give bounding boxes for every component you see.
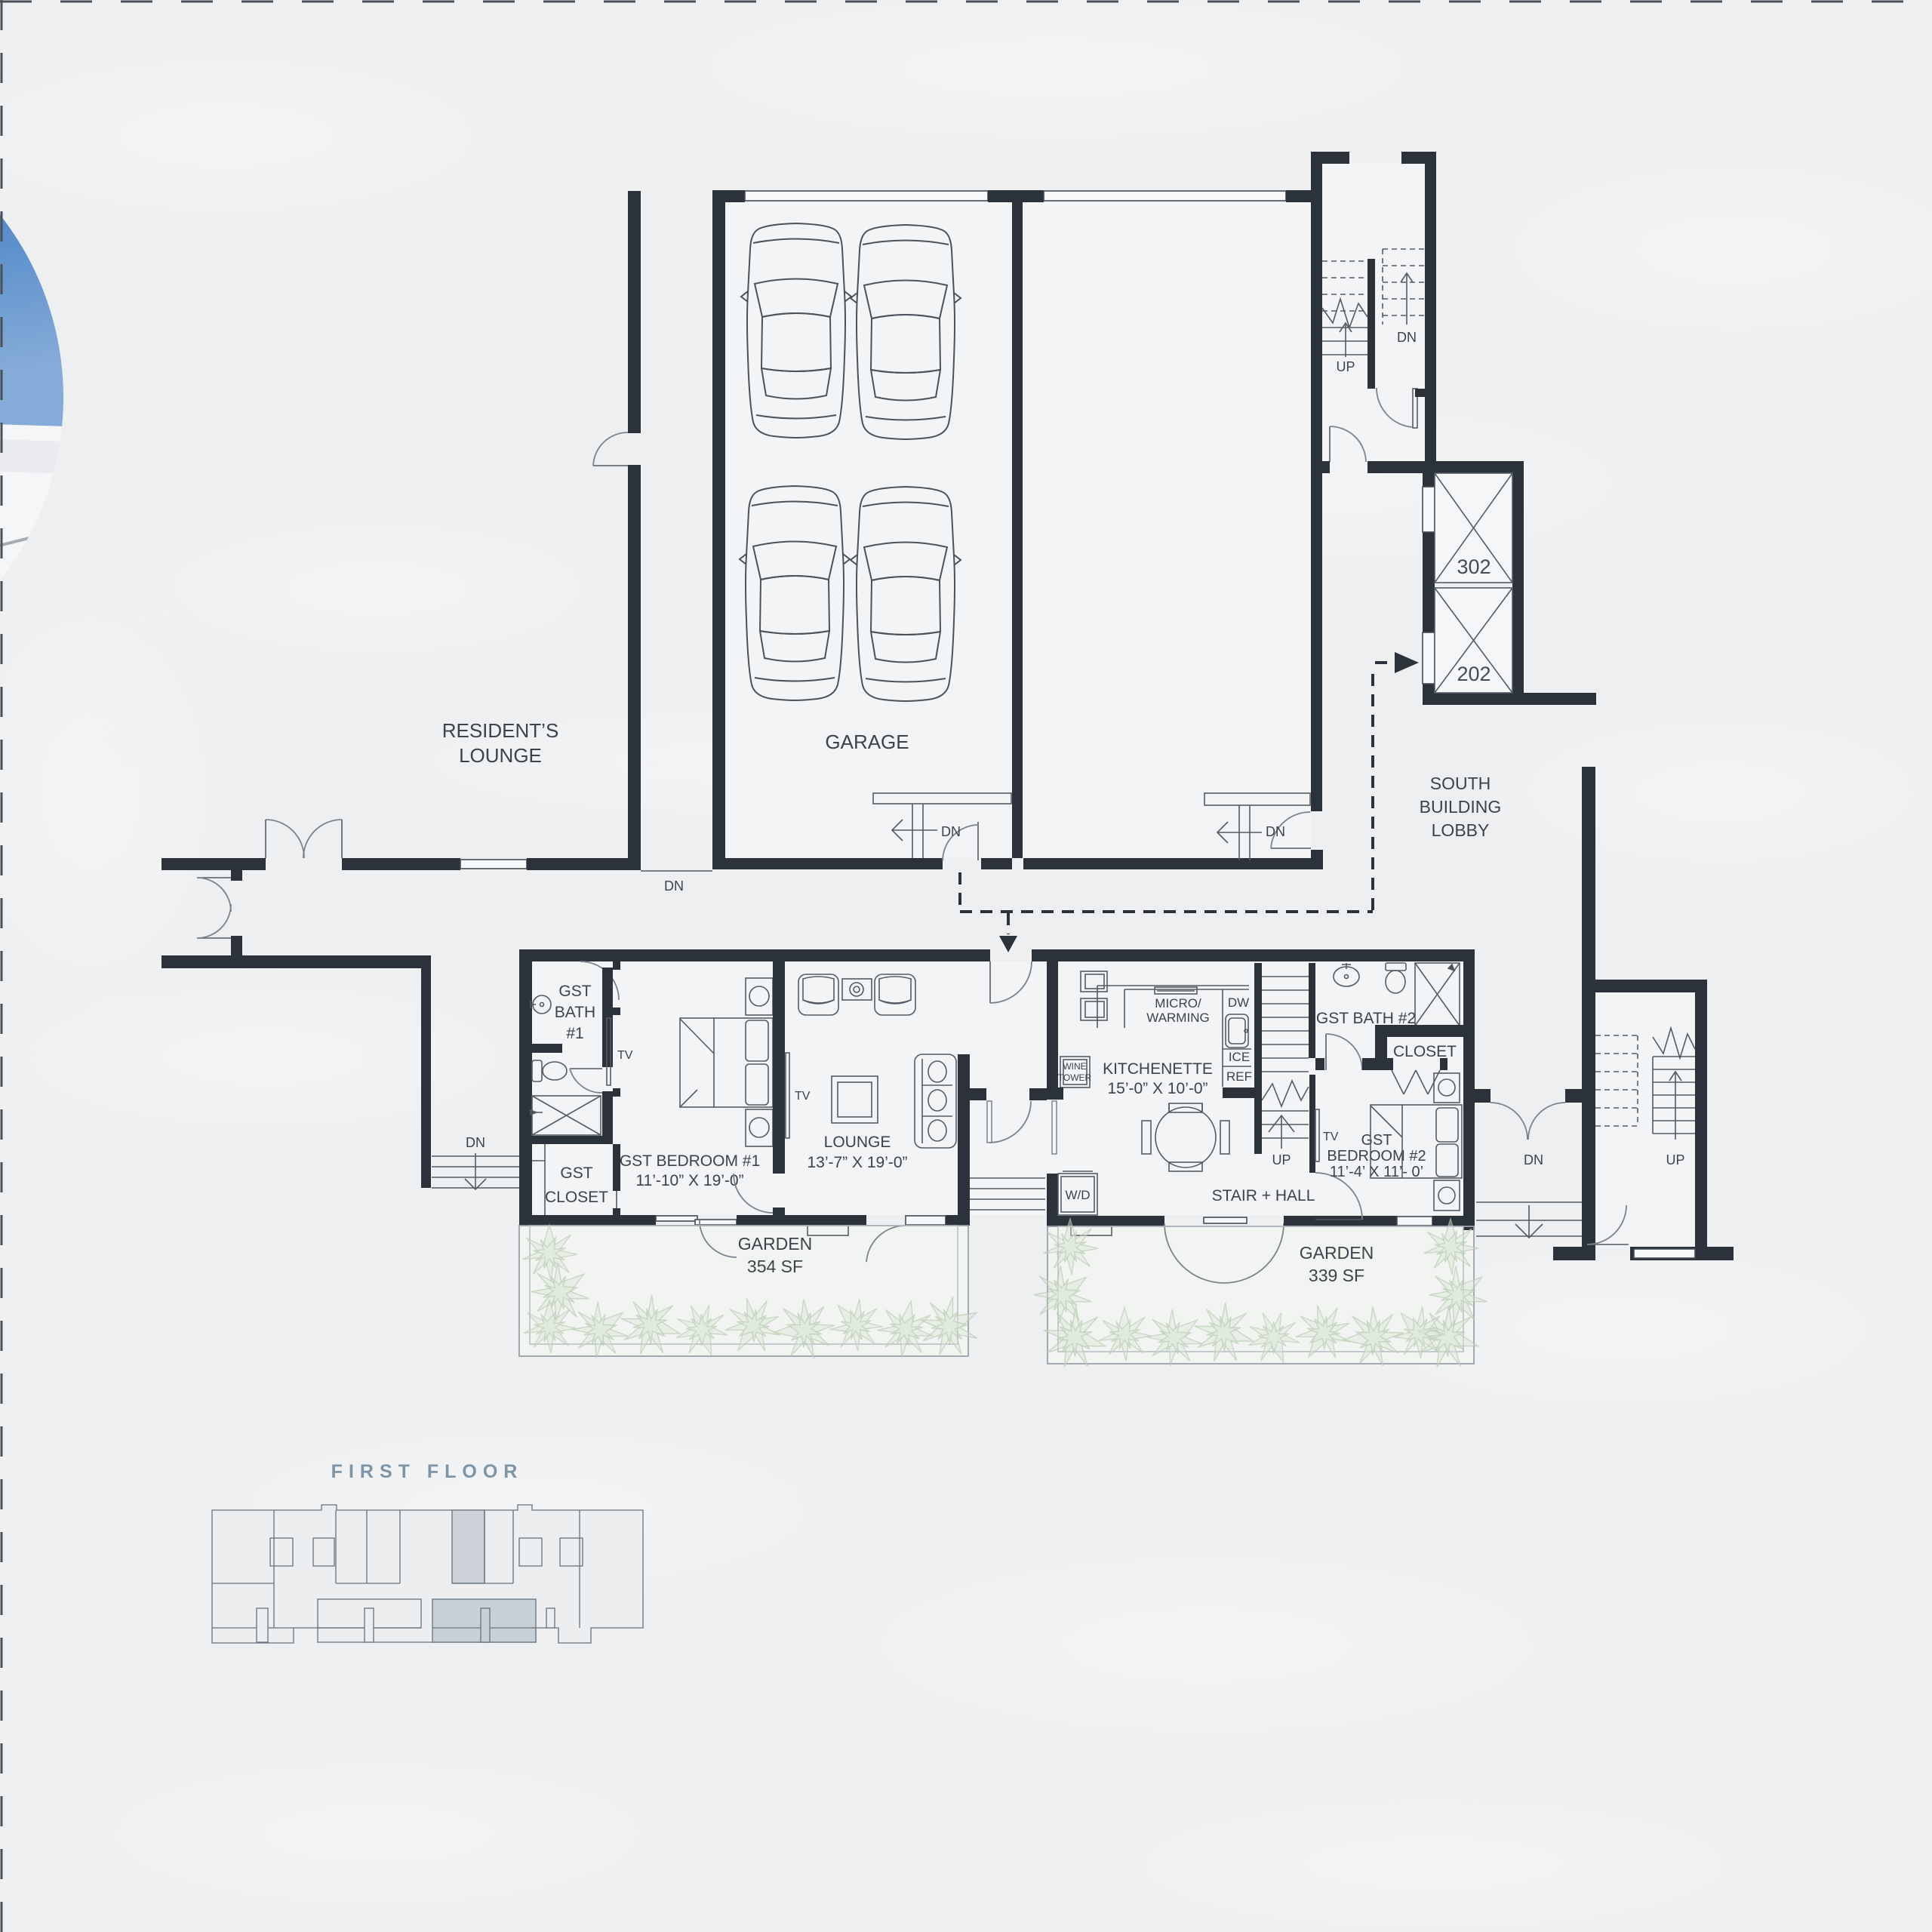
svg-text:GST: GST [1361,1132,1392,1149]
svg-text:354 SF: 354 SF [747,1257,803,1276]
svg-text:LOUNGE: LOUNGE [824,1134,891,1151]
svg-text:REF: REF [1226,1069,1252,1084]
svg-text:DN: DN [664,878,684,894]
svg-text:SOUTH: SOUTH [1430,774,1491,793]
svg-text:DN: DN [1266,824,1285,839]
svg-text:MICRO/: MICRO/ [1155,996,1201,1011]
svg-text:UP: UP [1666,1152,1684,1168]
svg-text:DN: DN [466,1135,485,1150]
svg-text:GST BEDROOM #1: GST BEDROOM #1 [620,1152,760,1170]
svg-text:15’-0” X 10’-0”: 15’-0” X 10’-0” [1107,1080,1207,1097]
svg-text:LOUNGE: LOUNGE [459,744,542,767]
svg-text:DW: DW [1228,995,1249,1010]
svg-text:W/D: W/D [1065,1188,1090,1202]
svg-text:DN: DN [1524,1152,1543,1168]
svg-text:UP: UP [1336,359,1355,374]
svg-text:STAIR + HALL: STAIR + HALL [1212,1187,1315,1204]
svg-text:DN: DN [1397,330,1417,345]
svg-text:GARDEN: GARDEN [738,1234,812,1254]
svg-text:302: 302 [1457,555,1491,578]
svg-text:339 SF: 339 SF [1309,1266,1364,1285]
svg-text:TV: TV [795,1090,811,1103]
svg-text:GARAGE: GARAGE [825,731,909,753]
svg-text:TOWER: TOWER [1058,1072,1092,1083]
svg-text:RESIDENT’S: RESIDENT’S [442,719,559,742]
svg-text:13’-7” X 19’-0”: 13’-7” X 19’-0” [807,1154,907,1171]
svg-text:WARMING: WARMING [1146,1011,1209,1025]
svg-text:202: 202 [1457,663,1491,685]
svg-text:BEDROOM #2: BEDROOM #2 [1327,1148,1426,1164]
svg-text:GST: GST [558,983,591,1000]
svg-text:FIRST FLOOR: FIRST FLOOR [331,1461,524,1482]
svg-text:TV: TV [1323,1131,1339,1143]
svg-text:WINE: WINE [1063,1061,1086,1072]
svg-text:GST: GST [560,1164,592,1182]
svg-text:GST BATH #2: GST BATH #2 [1316,1010,1416,1027]
svg-text:CLOSET: CLOSET [545,1189,608,1206]
svg-text:#1: #1 [566,1025,583,1042]
svg-text:TV: TV [617,1049,633,1062]
svg-text:GARDEN: GARDEN [1300,1243,1374,1263]
svg-text:KITCHENETTE: KITCHENETTE [1103,1060,1213,1078]
svg-text:11’-10” X 19’-0”: 11’-10” X 19’-0” [635,1172,743,1189]
svg-text:BUILDING: BUILDING [1420,797,1502,817]
svg-text:UP: UP [1272,1152,1291,1168]
svg-text:CLOSET: CLOSET [1393,1043,1457,1060]
svg-text:BATH: BATH [555,1004,595,1021]
svg-text:LOBBY: LOBBY [1432,820,1490,840]
svg-text:ICE: ICE [1229,1050,1250,1064]
svg-text:DN: DN [941,824,961,839]
